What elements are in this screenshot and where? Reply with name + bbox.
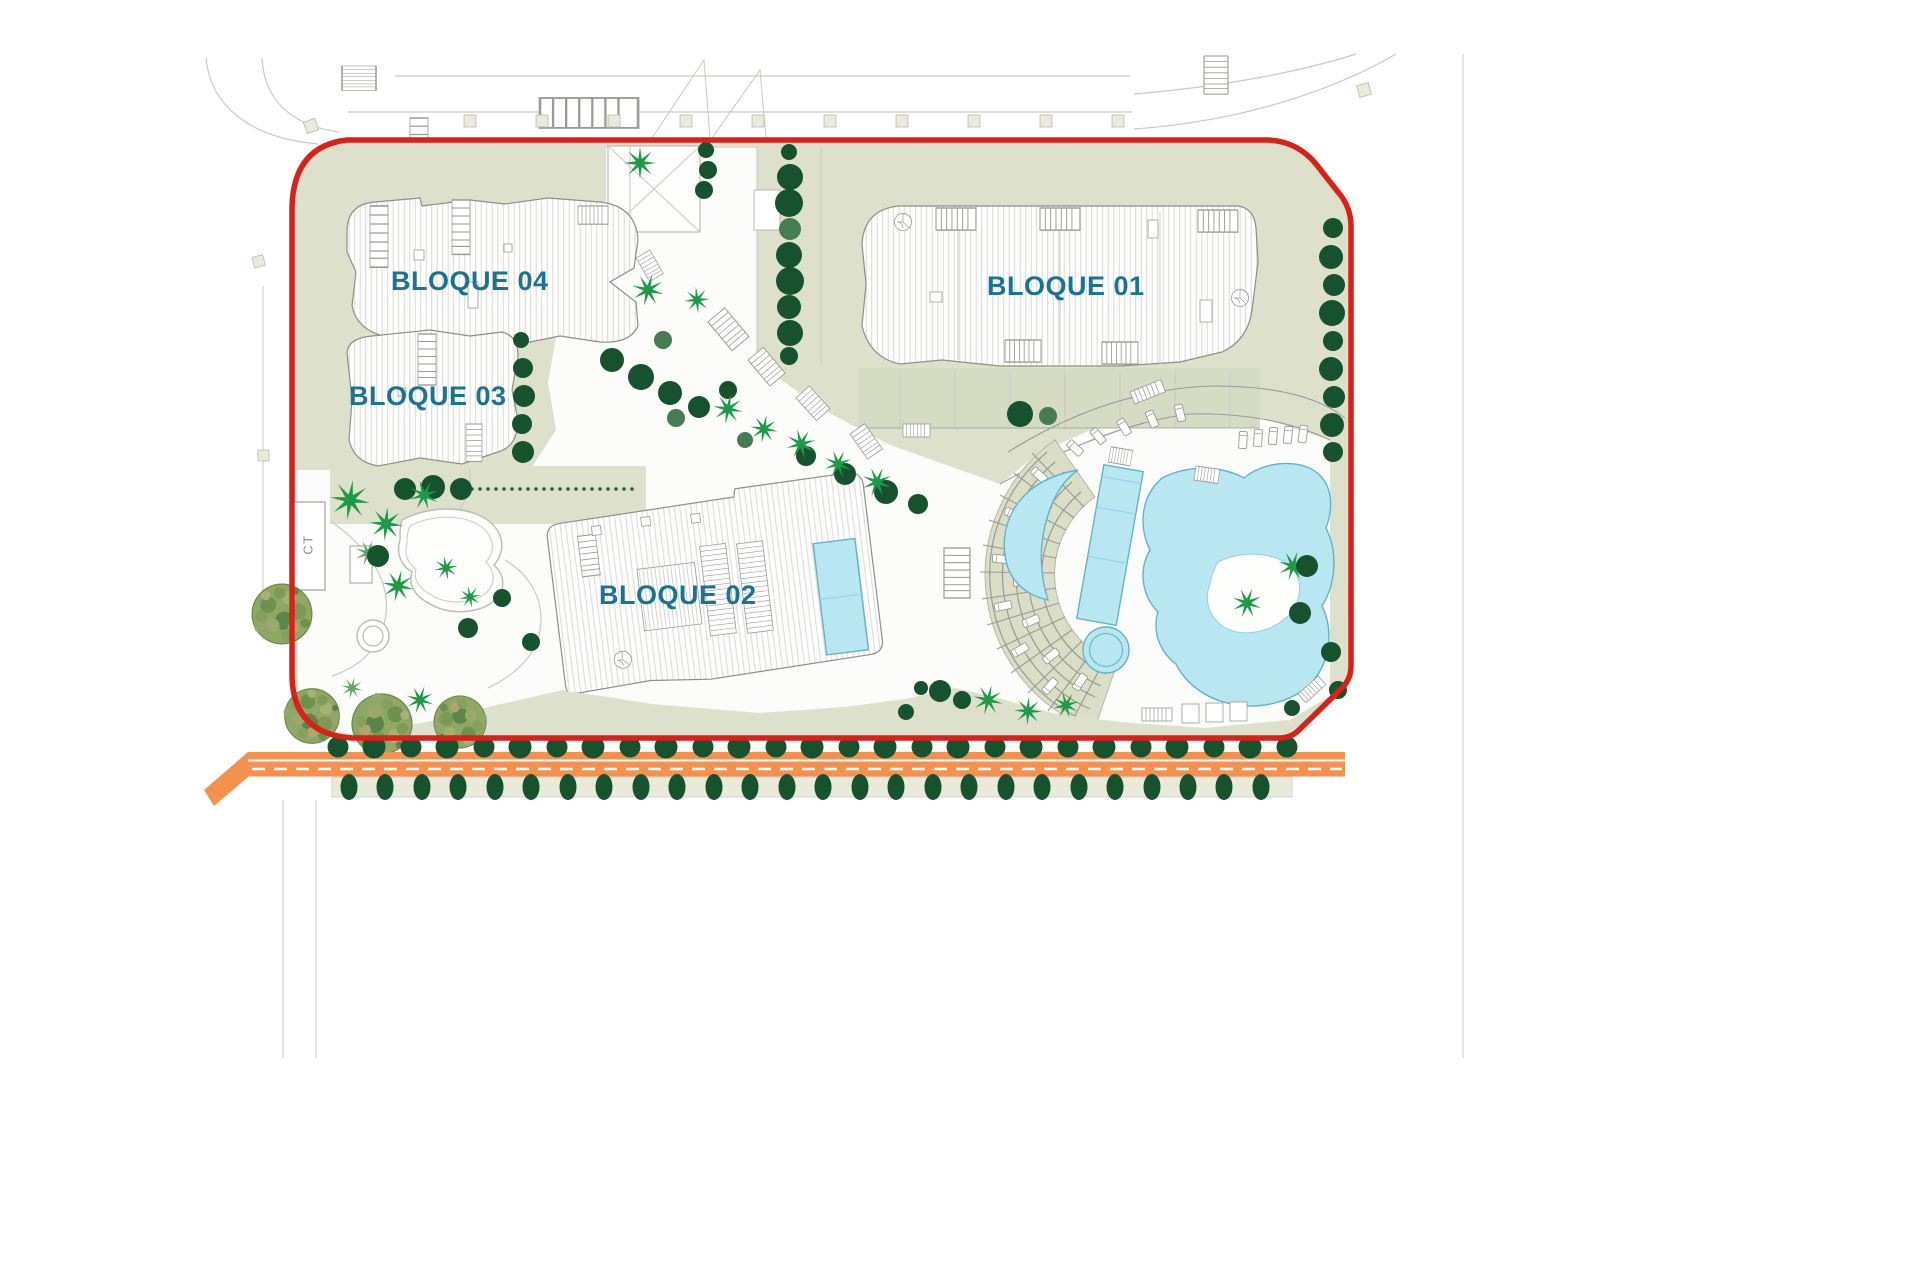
crosswalk-icon (540, 98, 638, 128)
spa-pool (1083, 627, 1129, 673)
site-plan-svg (0, 0, 1920, 1280)
ct-label: CT (301, 523, 316, 567)
block-01-label: BLOQUE 01 (987, 271, 1145, 302)
crosswalk-icon (1204, 56, 1228, 94)
garden-planting-strip (330, 466, 646, 524)
block-03-label: BLOQUE 03 (349, 381, 507, 412)
block-02-label: BLOQUE 02 (599, 580, 757, 611)
site-plan: BLOQUE 04 BLOQUE 03 BLOQUE 01 BLOQUE 02 … (0, 0, 1920, 1280)
block-04-label: BLOQUE 04 (391, 266, 549, 297)
crosswalk-icon (342, 66, 376, 90)
fountain (357, 620, 389, 652)
